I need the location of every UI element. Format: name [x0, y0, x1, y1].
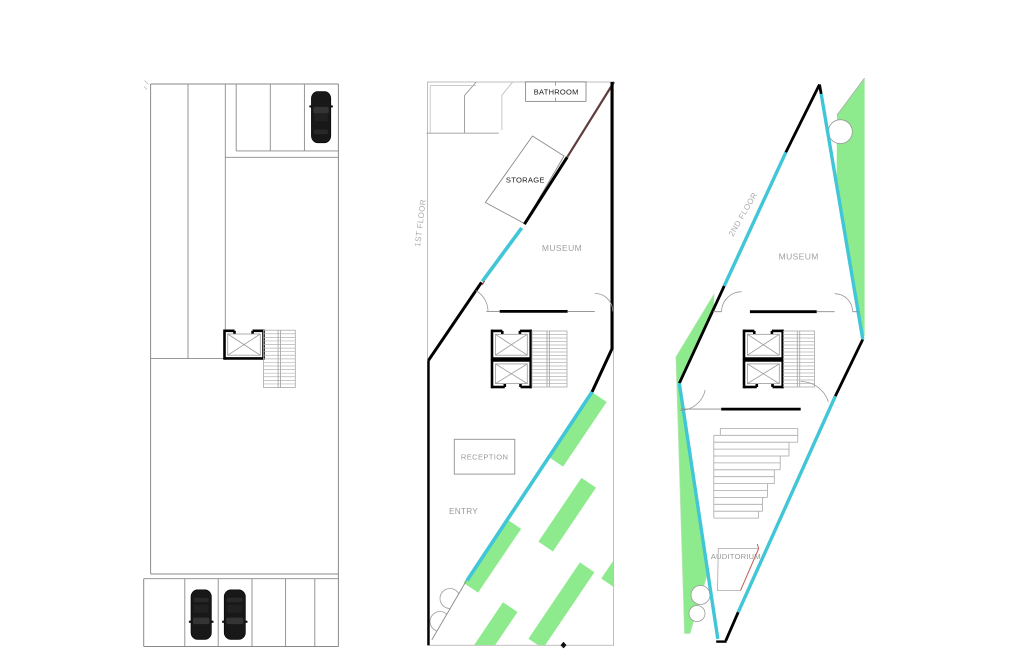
svg-text:STORAGE: STORAGE [506, 176, 545, 185]
svg-text:1ST FLOOR: 1ST FLOOR [413, 199, 428, 248]
svg-text:MUSEUM: MUSEUM [779, 252, 819, 262]
svg-text:ENTRY: ENTRY [449, 506, 478, 516]
svg-text:BATHROOM: BATHROOM [534, 87, 579, 96]
svg-text:MUSEUM: MUSEUM [542, 243, 582, 253]
svg-text:RECEPTION: RECEPTION [461, 453, 508, 462]
